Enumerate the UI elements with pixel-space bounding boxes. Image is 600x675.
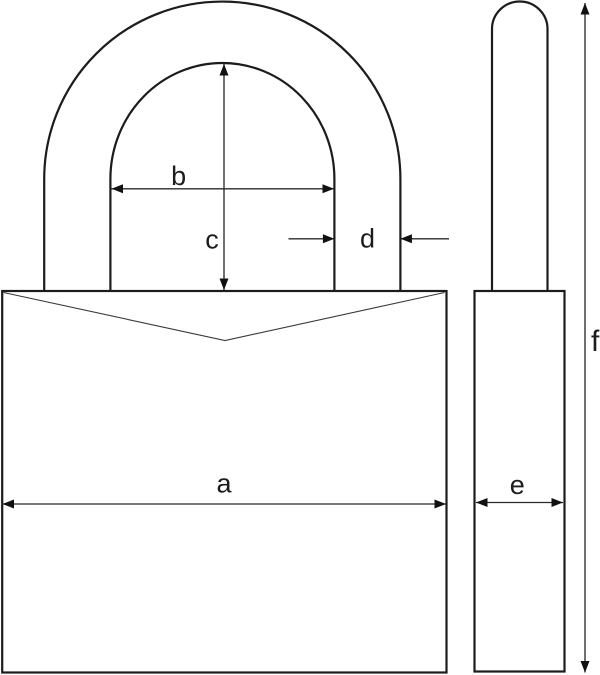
- svg-text:c: c: [205, 225, 219, 255]
- svg-text:d: d: [360, 223, 375, 253]
- svg-text:e: e: [510, 470, 525, 500]
- svg-text:f: f: [591, 325, 600, 358]
- svg-text:b: b: [171, 161, 186, 191]
- svg-text:a: a: [216, 469, 232, 499]
